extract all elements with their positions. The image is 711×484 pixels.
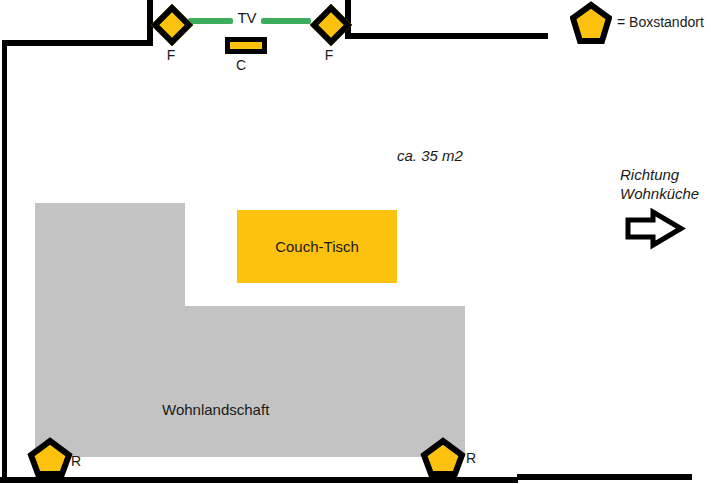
- front-speaker-left-icon: [151, 4, 193, 46]
- direction-label: Richtung Wohnküche: [620, 165, 699, 203]
- legend-pentagon-icon: [570, 1, 612, 45]
- wall-bottom-right-segment: [517, 474, 692, 480]
- tv-line-left: [188, 18, 233, 24]
- wall-bottom-left-segment: [0, 477, 518, 483]
- rear-speaker-right-label: R: [466, 450, 476, 466]
- direction-label-line1: Richtung: [620, 165, 699, 184]
- rear-speaker-right-icon: [420, 437, 466, 477]
- tv-label: TV: [232, 9, 262, 26]
- front-speaker-right-label: F: [322, 47, 336, 63]
- direction-arrow-icon: [624, 208, 686, 250]
- direction-label-line2: Wohnküche: [620, 184, 699, 203]
- sofa-label: Wohnlandschaft: [162, 401, 269, 418]
- rear-speaker-left-icon: [27, 437, 73, 477]
- wall-top-right: [345, 33, 548, 39]
- center-speaker-label: C: [234, 57, 248, 73]
- coffee-table-label: Couch-Tisch: [275, 238, 359, 255]
- floor-plan: TV F F C = Boxstandort ca. 35 m2 Richtun…: [0, 0, 711, 484]
- rear-speaker-left-label: R: [71, 453, 81, 469]
- front-speaker-left-label: F: [164, 47, 178, 63]
- wall-left: [2, 40, 7, 483]
- coffee-table: Couch-Tisch: [237, 210, 397, 283]
- tv-line-right: [261, 18, 311, 24]
- area-label: ca. 35 m2: [397, 147, 463, 164]
- wall-top-left: [2, 40, 153, 46]
- sofa-horizontal-section: [35, 306, 465, 457]
- center-speaker-icon: [225, 37, 267, 54]
- legend-label: = Boxstandort: [617, 14, 704, 30]
